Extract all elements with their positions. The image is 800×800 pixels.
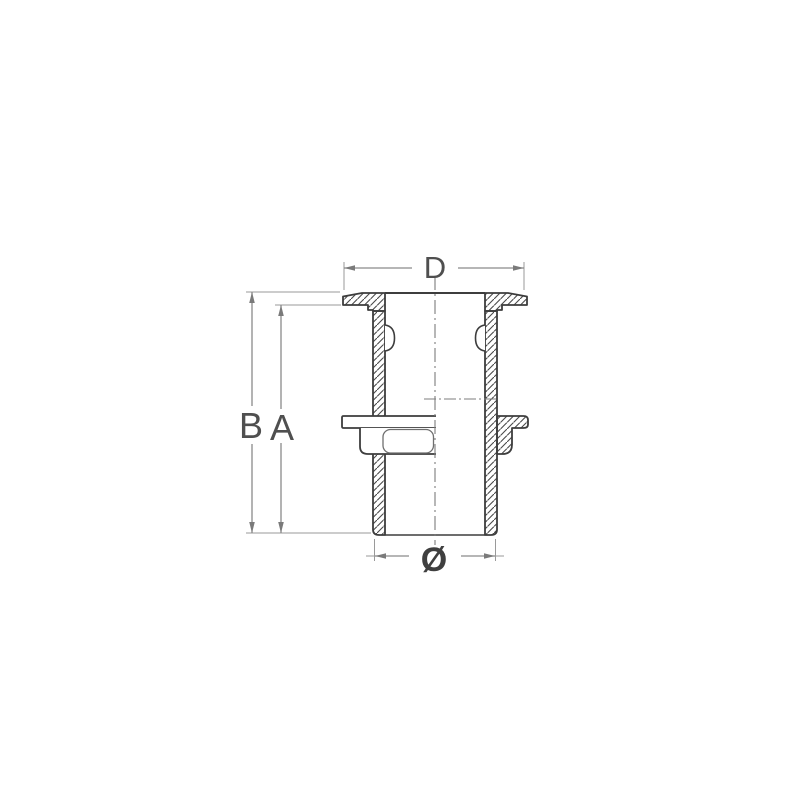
a-arrow-bottom [278,522,284,533]
dia-arrow-right [484,553,495,559]
internal-lug-left [385,325,395,351]
d-arrow-right [513,265,524,271]
d-arrow-left [344,265,355,271]
locknut-exterior-half [342,416,436,454]
dimension-a: A [270,305,341,533]
dim-label-a: A [270,407,294,448]
technical-drawing-page: D B A [0,0,800,800]
b-arrow-bottom [249,522,255,533]
dia-arrow-left [375,553,386,559]
locknut-section-right [497,416,528,454]
flange-section-left [343,293,385,311]
dimension-b: B [239,292,371,533]
through-hull-fitting-drawing: D B A [0,0,800,800]
dimension-d: D [344,250,524,290]
a-arrow-top [278,305,284,316]
dimension-diameter: Ø [366,539,504,579]
flange-section-right [485,293,527,311]
locknut-body-fill [360,428,436,454]
dim-label-b: B [239,405,263,446]
dim-label-d: D [424,250,446,285]
b-arrow-top [249,292,255,303]
dim-label-diameter: Ø [421,541,447,579]
body-wall-right [485,311,497,535]
internal-lug-right [476,325,486,351]
